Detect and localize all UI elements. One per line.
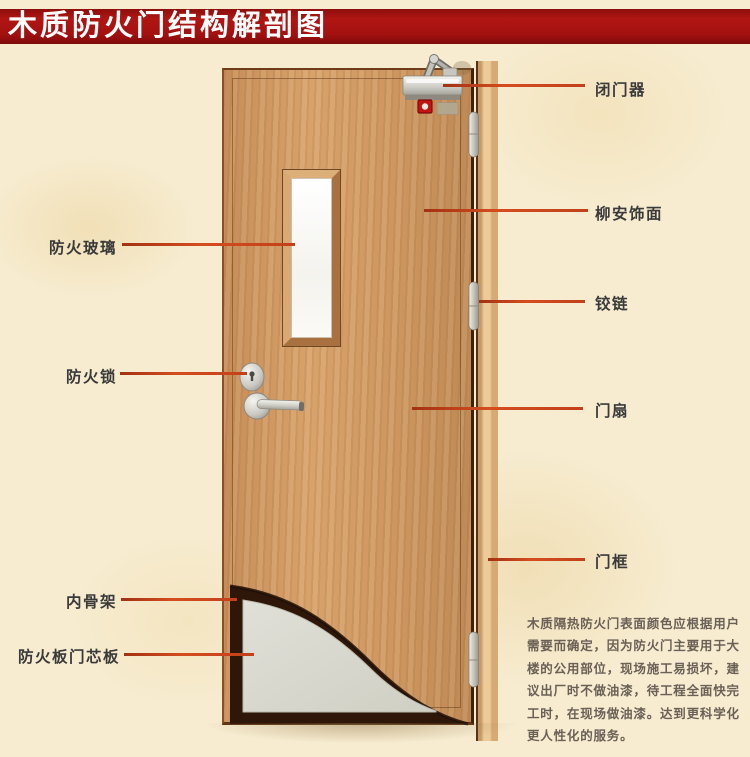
description-line: 木质隔热防火门表面颜色应根据用户 bbox=[527, 613, 723, 635]
leader-line-fire-glass bbox=[122, 243, 295, 246]
description-paragraph: 木质隔热防火门表面颜色应根据用户 需要而确定，因为防火门主要用于大 楼的公用部位… bbox=[527, 613, 723, 747]
description-line: 楼的公用部位，现场施工易损坏，建 bbox=[527, 658, 723, 680]
door-leaf bbox=[222, 68, 474, 725]
label-door-frame: 门框 bbox=[595, 550, 629, 572]
leader-line-hinge bbox=[479, 300, 585, 303]
label-fire-glass: 防火玻璃 bbox=[49, 236, 117, 258]
leader-line-core-board bbox=[124, 653, 254, 656]
label-veneer: 柳安饰面 bbox=[595, 202, 663, 224]
leader-line-door-closer bbox=[443, 84, 585, 87]
label-inner-skeleton: 内骨架 bbox=[66, 590, 117, 612]
description-line: 议出厂时不做油漆，待工程全面快完 bbox=[527, 680, 723, 702]
leader-line-inner-skeleton bbox=[121, 598, 237, 601]
label-door-leaf: 门扇 bbox=[595, 399, 629, 421]
leader-line-veneer bbox=[424, 209, 588, 212]
leader-line-fire-lock bbox=[120, 372, 247, 375]
label-door-closer: 闭门器 bbox=[595, 78, 646, 100]
label-core-board: 防火板门芯板 bbox=[18, 645, 120, 667]
label-hinge: 铰链 bbox=[595, 292, 629, 314]
door-shadow bbox=[206, 723, 516, 743]
door-frame bbox=[476, 61, 498, 741]
panel-groove bbox=[232, 78, 461, 708]
description-line: 需要而确定，因为防火门主要用于大 bbox=[527, 635, 723, 657]
label-fire-lock: 防火锁 bbox=[66, 365, 117, 387]
page-title: 木质防火门结构解剖图 bbox=[0, 9, 328, 44]
description-line: 更人性化的服务。 bbox=[527, 725, 723, 747]
title-banner: 木质防火门结构解剖图 bbox=[0, 9, 750, 44]
leader-line-door-frame bbox=[488, 558, 585, 561]
poster: 木质防火门结构解剖图 bbox=[0, 0, 750, 757]
leader-line-door-leaf bbox=[412, 407, 583, 410]
fire-glass-window bbox=[283, 170, 340, 346]
description-line: 工时，在现场做油漆。达到更科学化 bbox=[527, 703, 723, 725]
